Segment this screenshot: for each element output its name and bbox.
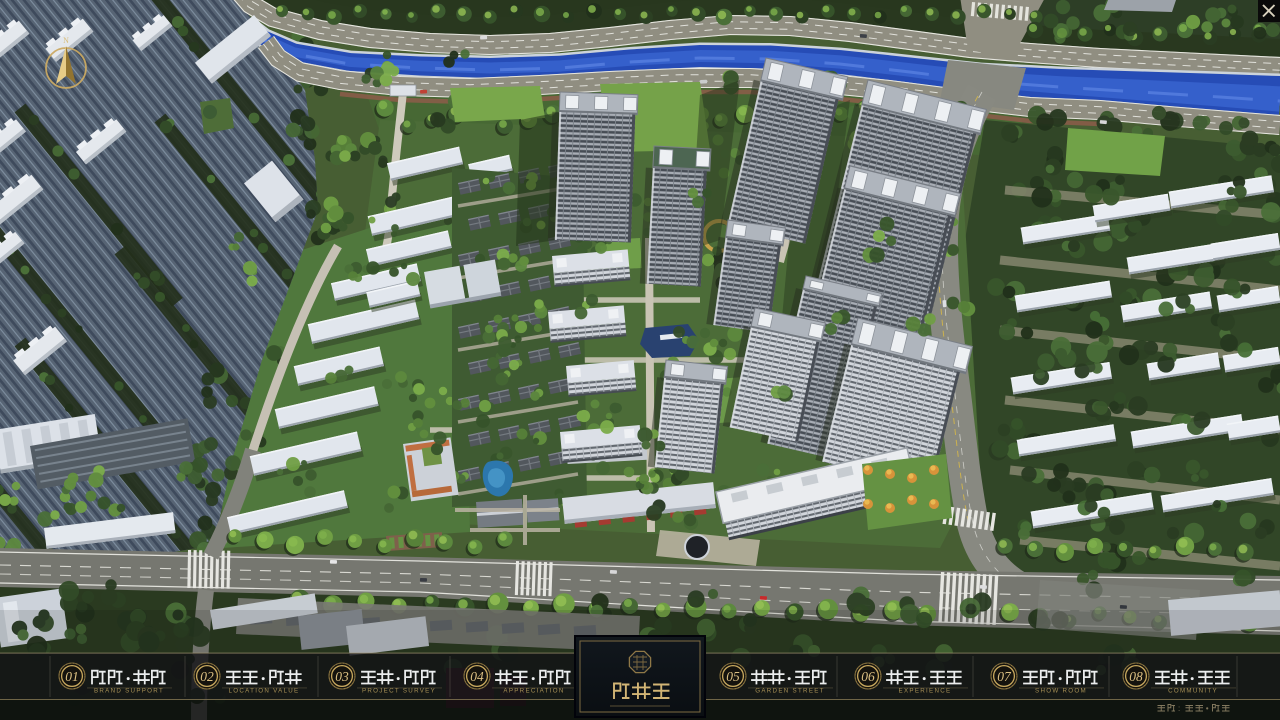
svg-text:LOCATION VALUE: LOCATION VALUE [229, 688, 300, 695]
svg-text:03: 03 [335, 669, 349, 684]
svg-text:BRAND SUPPORT: BRAND SUPPORT [94, 688, 164, 695]
svg-text:02: 02 [200, 669, 214, 684]
svg-text:04: 04 [470, 669, 484, 684]
svg-text:01: 01 [65, 669, 79, 684]
svg-text:08: 08 [1129, 669, 1143, 684]
svg-text:APPRECIATION: APPRECIATION [503, 688, 564, 695]
svg-text:EXPERIENCE: EXPERIENCE [899, 688, 952, 695]
svg-text:05: 05 [726, 669, 740, 684]
svg-text::: : [1178, 704, 1180, 713]
svg-text:06: 06 [861, 669, 875, 684]
svg-text:COMMUNITY: COMMUNITY [1168, 688, 1218, 695]
svg-text:GARDEN STREET: GARDEN STREET [755, 688, 825, 695]
svg-text:07: 07 [997, 669, 1012, 684]
svg-text:SHOW ROOM: SHOW ROOM [1035, 688, 1087, 695]
svg-text:PROJECT SURVEY: PROJECT SURVEY [362, 688, 436, 695]
